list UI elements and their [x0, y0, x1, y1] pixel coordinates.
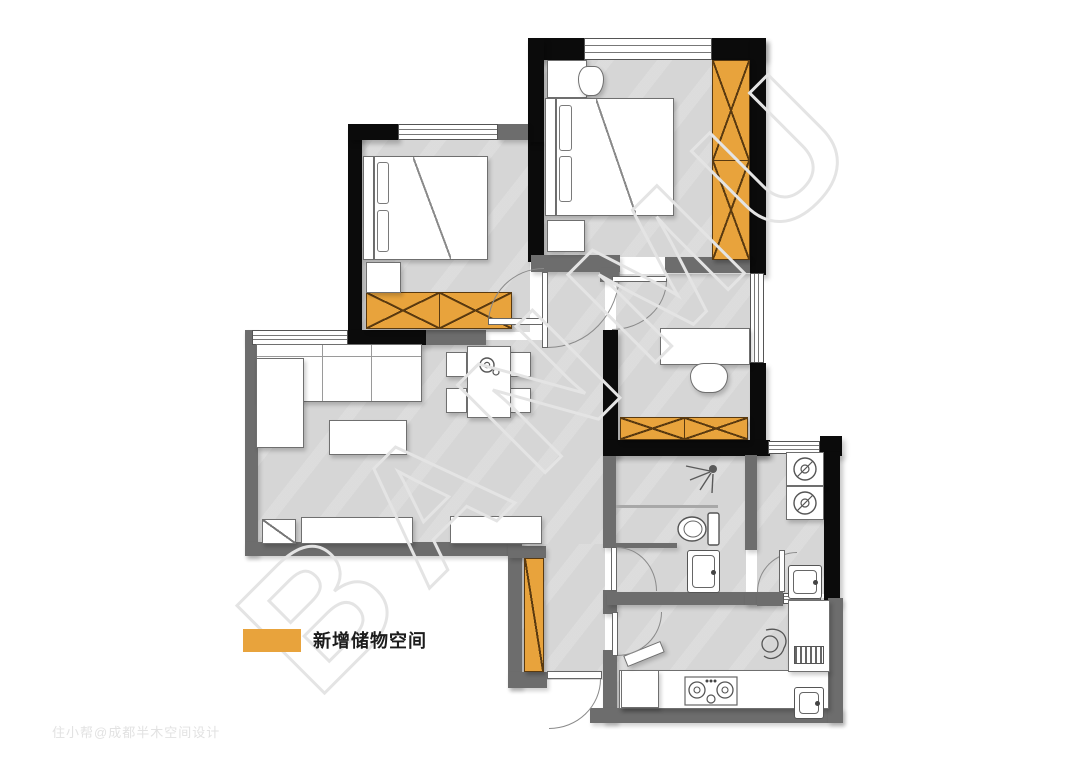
pillow: [559, 156, 572, 202]
cabinet-storage: [620, 417, 748, 440]
coffee-table: [329, 420, 407, 455]
desk-chair: [690, 363, 728, 393]
storage-cell: [621, 418, 684, 439]
wall-segment: [508, 672, 547, 688]
faucet: [813, 580, 818, 585]
door-leaf: [612, 276, 667, 282]
window: [584, 38, 712, 60]
storage-cell: [684, 418, 748, 439]
dining-chair: [446, 352, 467, 377]
stool: [578, 66, 604, 96]
shower-head-icon: [682, 460, 720, 496]
door-leaf: [542, 272, 548, 348]
pillow: [377, 210, 389, 252]
wall-segment: [603, 440, 770, 456]
nightstand: [547, 220, 585, 252]
floor-plan-canvas: BANMU 新增储物空间 住小帮@成都半木空间设计: [0, 0, 1080, 762]
door-leaf: [611, 547, 617, 591]
wall-segment: [824, 452, 840, 605]
storage-cell: [525, 559, 543, 671]
shower-glass-line: [616, 505, 718, 508]
wall-segment: [745, 592, 757, 605]
washing-machine-icon: [790, 488, 820, 518]
wall-segment: [603, 456, 616, 548]
wall-segment: [828, 598, 843, 723]
nightstand: [366, 262, 401, 293]
wall-segment: [348, 124, 362, 345]
entry-door-leaf: [547, 671, 602, 679]
wall-segment: [245, 542, 522, 556]
tv-cabinet: [301, 517, 413, 544]
console-cabinet: [450, 516, 542, 544]
door-leaf: [612, 612, 618, 656]
gas-stove-icon: [684, 676, 738, 706]
wall-segment: [426, 330, 486, 345]
pillow: [559, 105, 572, 151]
bed-headboard: [545, 98, 556, 216]
door-leaf: [488, 318, 544, 325]
teapot-icon: [476, 354, 502, 380]
bed: [374, 156, 488, 260]
person-figure-icon: [756, 624, 792, 664]
pillow: [377, 162, 389, 204]
washing-machine-icon: [790, 454, 820, 484]
dining-chair: [510, 388, 531, 413]
kitchen-sink: [794, 687, 824, 719]
bathroom-sink: [687, 550, 720, 593]
wall-segment: [757, 592, 783, 606]
blanket-fold: [413, 157, 451, 259]
wall-segment: [348, 330, 426, 345]
sofa-chaise: [256, 358, 304, 448]
dining-chair: [510, 352, 531, 377]
window: [252, 330, 348, 345]
desk: [660, 328, 750, 365]
fridge: [621, 670, 659, 708]
credit-watermark: 住小帮@成都半木空间设计: [52, 722, 220, 741]
wall-segment: [603, 330, 618, 456]
shoe-cabinet-storage: [524, 558, 544, 672]
window: [750, 273, 764, 363]
toilet: [675, 510, 723, 548]
wall-segment: [508, 546, 546, 558]
legend-swatch: [243, 629, 301, 652]
door-leaf: [779, 550, 785, 592]
wall-segment: [607, 592, 759, 605]
wall-segment: [508, 542, 522, 688]
wall-segment: [750, 38, 766, 275]
storage-cell: [713, 61, 749, 160]
bed: [556, 98, 674, 216]
faucet: [815, 701, 820, 706]
wardrobe-storage: [712, 60, 750, 260]
legend: 新增储物空间: [243, 627, 427, 653]
wall-segment: [528, 140, 544, 262]
storage-cell: [367, 293, 439, 328]
blanket-fold: [596, 99, 635, 215]
bed-headboard: [363, 156, 374, 260]
dish-rack: [794, 646, 824, 664]
wall-segment: [498, 124, 528, 140]
faucet: [711, 570, 716, 575]
window: [398, 124, 498, 140]
wall-segment: [745, 455, 757, 550]
storage-cell: [713, 160, 749, 260]
dining-chair: [446, 388, 467, 413]
wall-segment: [528, 38, 544, 142]
side-unit: [262, 519, 296, 544]
legend-label: 新增储物空间: [313, 627, 427, 653]
wall-segment: [348, 124, 398, 140]
